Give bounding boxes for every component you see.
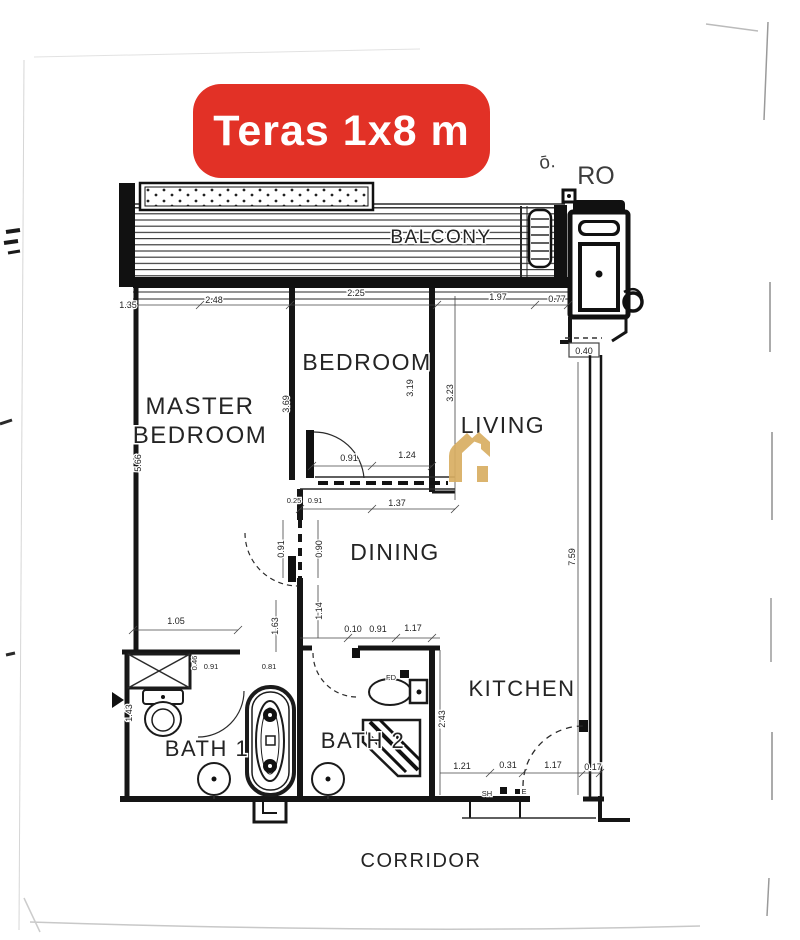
dim-bedlow-3: 1.37	[388, 498, 406, 508]
dim-hall-1: 0.10	[344, 624, 362, 634]
dim-kit-3: 1.17	[544, 760, 562, 770]
sink-bath2	[312, 763, 344, 799]
window-wall-band	[133, 277, 570, 288]
dim-top-4: 1.97	[489, 292, 507, 302]
unit-knob	[596, 271, 603, 278]
dim-hall-2: 0.91	[369, 624, 387, 634]
handwriting-left: ō.	[538, 151, 557, 174]
kitchen-label: KITCHEN	[468, 676, 575, 701]
dim-top-2: 2.48	[205, 295, 223, 305]
teras-badge: Teras 1x8 m	[193, 84, 490, 178]
e-label: E	[521, 787, 526, 796]
dim-kit-4: 0.17	[584, 762, 602, 772]
dim-living: 3.23	[445, 384, 455, 402]
corridor-label: CORRIDOR	[361, 850, 482, 872]
toilet-bath2	[369, 679, 427, 705]
dim-bedlow-1: 0.25	[287, 496, 302, 505]
bathtub	[247, 687, 294, 795]
dim-bath-4: 0.81	[262, 662, 277, 671]
bath2-door-arc	[313, 653, 357, 697]
master-bedroom-label-line1: MASTER	[145, 393, 254, 420]
balcony-left-post	[119, 183, 135, 287]
balcony-right-post	[554, 205, 567, 287]
dim-right-wall: 7.59	[567, 548, 577, 566]
dim-top-5: 0.77	[548, 294, 566, 304]
dim-hall-3: 1.17	[404, 623, 422, 633]
dim-shaft: 0.40	[575, 346, 593, 356]
master-bedroom-label-line2: BEDROOM	[133, 422, 268, 449]
bath1-door-arc	[198, 691, 244, 737]
dim-dining-1: 0.91	[276, 540, 286, 558]
bath2-door-leaf	[352, 648, 360, 658]
dim-top-3: 2.25	[347, 288, 365, 298]
dim-kit-2: 0.31	[499, 760, 517, 770]
floorplan-scan-page: BALCONY ō. RO	[0, 0, 800, 940]
sh-label: SH	[482, 789, 492, 798]
kitchen-door-arc	[523, 726, 583, 786]
dim-kitchen-h: 2.43	[437, 710, 447, 728]
dim-dining-2: 0.90	[314, 540, 324, 558]
living-label: LIVING	[461, 412, 545, 438]
bedroom-label: BEDROOM	[302, 349, 431, 375]
dim-left-lower: 1.43	[124, 704, 134, 722]
dim-master-left: 5.66	[133, 454, 143, 472]
master-door-leaf	[288, 556, 296, 582]
dim-bath-1: 1.05	[167, 616, 185, 626]
floor-drain-label: FD	[386, 673, 397, 682]
shower-box	[128, 654, 190, 688]
balcony-label: BALCONY	[390, 227, 491, 248]
dim-top-1: 1.35	[119, 300, 137, 310]
left-wall-marker	[112, 692, 124, 708]
handwriting-right: RO	[577, 162, 615, 190]
dim-kit-1: 1.21	[453, 761, 471, 771]
room-labels: MASTER BEDROOM BEDROOM LIVING DINING KIT…	[133, 349, 576, 872]
floor-drain-mark	[400, 670, 409, 678]
dim-dining-4: 1.63	[270, 617, 280, 635]
sink-bath1	[198, 763, 230, 799]
bedroom-door-leaf	[306, 430, 314, 478]
dim-beddoor-2: 1.24	[398, 450, 416, 460]
teras-badge-label: Teras 1x8 m	[213, 107, 469, 156]
dim-bedroom: 3.19	[405, 379, 415, 397]
dim-beddoor-1: 0.91	[340, 453, 358, 463]
balcony-ladder	[529, 210, 551, 267]
planter-box	[140, 183, 373, 210]
balcony-decking	[135, 206, 565, 278]
balcony-area: BALCONY	[119, 183, 590, 299]
toilet-bath1	[143, 690, 183, 736]
dim-master-divider: 3.69	[281, 395, 291, 413]
bath2-label: BATH 2	[321, 728, 405, 753]
dim-bath-2: 0.46	[190, 656, 199, 671]
dining-label: DINING	[350, 539, 440, 565]
bath1-label: BATH 1	[165, 736, 249, 761]
dim-bath-3: 0.91	[204, 662, 219, 671]
bath1-fixtures	[128, 654, 294, 799]
dim-dining-3: 1.14	[314, 602, 324, 620]
dim-bedlow-2: 0.91	[308, 496, 323, 505]
